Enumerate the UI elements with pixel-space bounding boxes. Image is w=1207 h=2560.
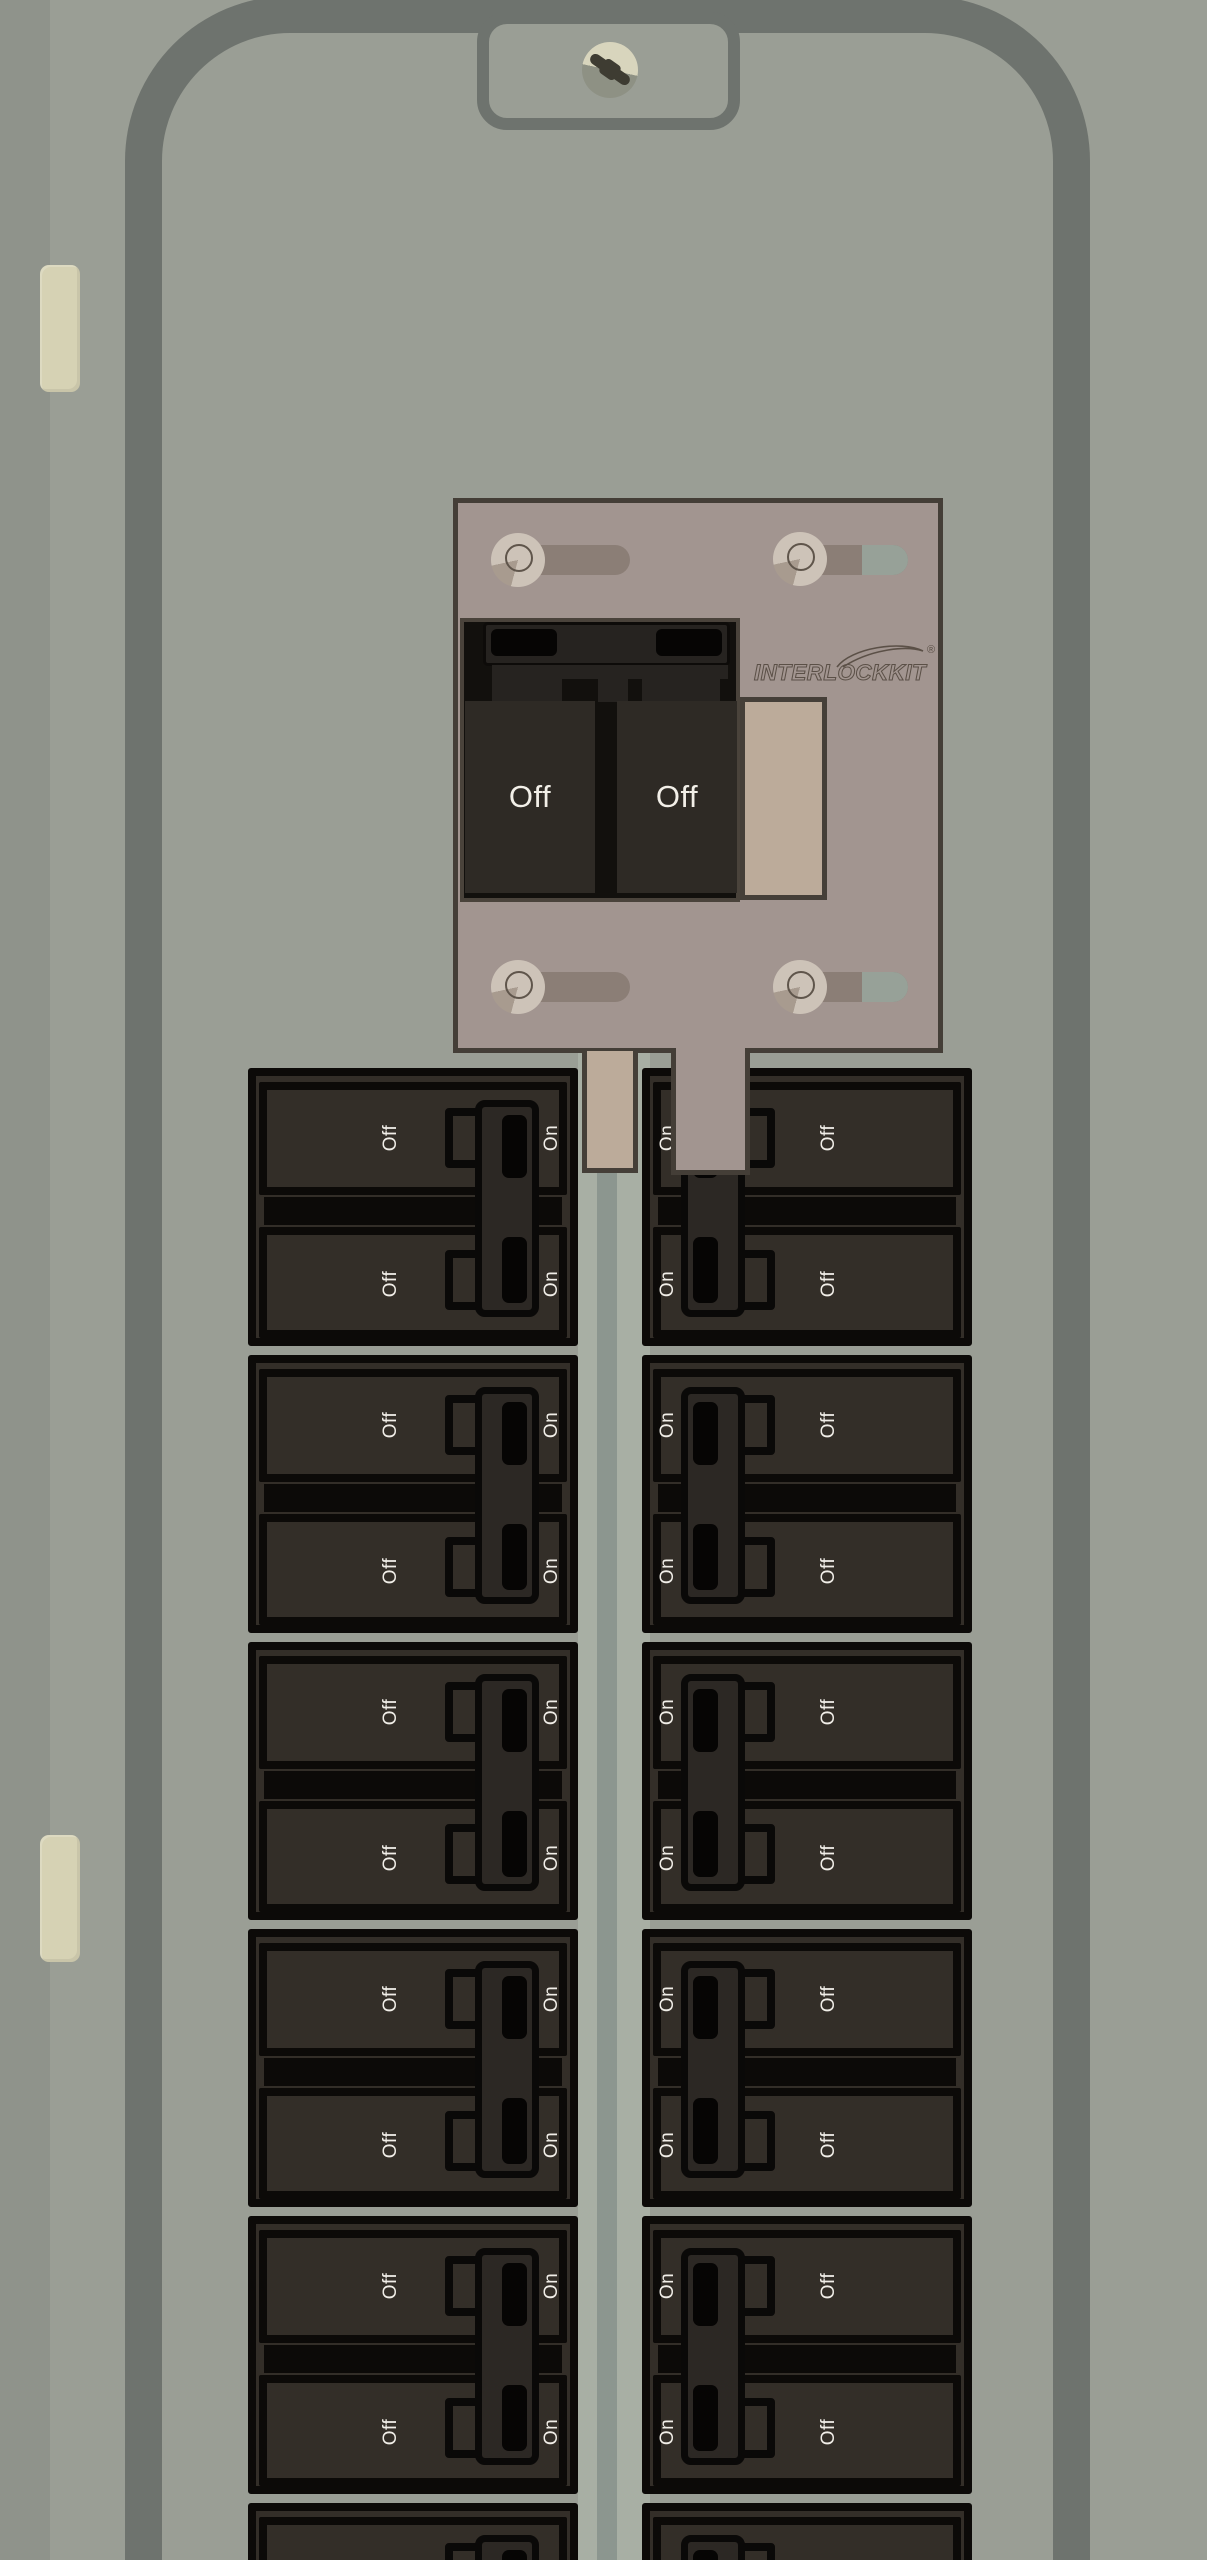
- breaker-label-off: Off: [380, 2273, 402, 2300]
- breaker-label-off: Off: [818, 1558, 840, 1585]
- column-gap: [578, 1048, 650, 2560]
- breaker-label-on: On: [657, 2273, 679, 2299]
- main-handle-slot: [491, 629, 557, 656]
- breaker-group: Off On Off On: [248, 1642, 578, 1920]
- breaker-column-left: Off On Off On Off On Off On Off On Off O…: [248, 1068, 578, 2560]
- breaker-label-on: On: [541, 2419, 563, 2445]
- breaker-label-off: Off: [818, 1699, 840, 1726]
- handle-slot-icon: [502, 1115, 527, 1178]
- screw-ring: [787, 971, 815, 999]
- breaker-label-on: On: [541, 2132, 563, 2158]
- breaker-group: Off On Off On: [642, 2216, 972, 2494]
- registered-mark: ®: [927, 644, 935, 656]
- breaker-group: Off On Off On: [248, 2503, 578, 2560]
- main-breaker-right-pole[interactable]: Off: [617, 701, 737, 893]
- main-breaker-left-label: Off: [509, 779, 551, 815]
- interlock-plate-seam: [676, 1045, 745, 1054]
- screw-ring: [787, 543, 815, 571]
- breaker-label-on: On: [657, 1271, 679, 1297]
- handle-slot-icon: [693, 2385, 718, 2451]
- hinge-icon: [40, 265, 80, 392]
- breaker-label-on: On: [541, 1986, 563, 2012]
- breaker-group: Off On Off On: [248, 1929, 578, 2207]
- handle-slot-icon: [502, 2263, 527, 2326]
- breaker-label-off: Off: [818, 2132, 840, 2159]
- breaker-label-on: On: [541, 1845, 563, 1871]
- breaker-label-off: Off: [818, 2419, 840, 2446]
- breaker-label-on: On: [541, 1271, 563, 1297]
- breaker-label-off: Off: [380, 1412, 402, 1439]
- handle-slot-icon: [693, 2263, 718, 2326]
- interlockkit-logo: INTERLOCKKIT ®: [753, 636, 943, 688]
- screw-icon: [773, 960, 827, 1014]
- breaker-label-on: On: [657, 1845, 679, 1871]
- handle-slot-icon: [693, 1524, 718, 1590]
- breaker-group: Off On Off On: [642, 1642, 972, 1920]
- screw-ring: [505, 544, 533, 572]
- main-handle-slot: [656, 629, 722, 656]
- screw-track-open-slot: [862, 545, 908, 575]
- interlock-plate-center-tab: [671, 1051, 750, 1175]
- breaker-label-off: Off: [818, 1271, 840, 1298]
- column-gap-divider: [597, 1048, 617, 2560]
- breaker-label-on: On: [541, 1412, 563, 1438]
- screw-track-open-slot: [862, 972, 908, 1002]
- screw-icon: [582, 42, 638, 98]
- breaker-label-off: Off: [818, 1845, 840, 1872]
- handle-slot-icon: [502, 1976, 527, 2039]
- screw-icon: [491, 533, 545, 587]
- handle-slot-icon: [502, 1402, 527, 1465]
- breaker-label-on: On: [657, 1558, 679, 1584]
- breaker-column-right: Off On Off On Off On Off On Off On Off O…: [642, 1068, 972, 2560]
- breaker-label-on: On: [657, 2419, 679, 2445]
- handle-slot-icon: [502, 1237, 527, 1303]
- interlock-slider-plate[interactable]: [740, 697, 827, 900]
- breaker-label-off: Off: [818, 1986, 840, 2013]
- handle-slot-icon: [502, 1689, 527, 1752]
- breaker-panel: Off On Off On Off On Off On Off On Off O…: [0, 0, 1207, 2560]
- breaker-label-on: On: [657, 1412, 679, 1438]
- breaker-label-off: Off: [380, 1986, 402, 2013]
- breaker-label-off: Off: [380, 2132, 402, 2159]
- main-breaker-right-label: Off: [656, 779, 698, 815]
- breaker-label-off: Off: [380, 1558, 402, 1585]
- handle-slot-icon: [502, 1811, 527, 1877]
- handle-slot-icon: [502, 2385, 527, 2451]
- breaker-label-off: Off: [380, 1699, 402, 1726]
- breaker-label-on: On: [657, 2132, 679, 2158]
- breaker-label-on: On: [657, 1986, 679, 2012]
- breaker-label-off: Off: [818, 1125, 840, 1152]
- breaker-label-on: On: [541, 1558, 563, 1584]
- breaker-group: Off On Off On: [642, 2503, 972, 2560]
- breaker-group: Off On Off On: [642, 1355, 972, 1633]
- breaker-group: Off On Off On: [642, 1929, 972, 2207]
- handle-slot-icon: [502, 2098, 527, 2164]
- handle-slot-icon: [502, 2550, 527, 2560]
- handle-slot-icon: [693, 1237, 718, 1303]
- handle-slot-icon: [693, 1402, 718, 1465]
- main-handle-post: [598, 666, 628, 702]
- handle-slot-icon: [693, 1976, 718, 2039]
- breaker-label-on: On: [541, 1125, 563, 1151]
- handle-slot-icon: [502, 1524, 527, 1590]
- hinge-icon: [40, 1835, 80, 1962]
- screw-icon: [773, 532, 827, 586]
- breaker-label-off: Off: [380, 1271, 402, 1298]
- breaker-label-off: Off: [818, 2273, 840, 2300]
- breaker-label-on: On: [541, 1699, 563, 1725]
- handle-slot-icon: [693, 1811, 718, 1877]
- screw-icon: [491, 960, 545, 1014]
- breaker-label-off: Off: [380, 2419, 402, 2446]
- breaker-label-off: Off: [380, 1125, 402, 1152]
- breaker-group: Off On Off On: [248, 2216, 578, 2494]
- breaker-group: Off On Off On: [248, 1355, 578, 1633]
- breaker-label-off: Off: [380, 1845, 402, 1872]
- breaker-group: Off On Off On: [248, 1068, 578, 1346]
- screw-ring: [505, 971, 533, 999]
- main-breaker-left-pole[interactable]: Off: [465, 701, 595, 893]
- breaker-label-on: On: [657, 1699, 679, 1725]
- breaker-label-on: On: [541, 2273, 563, 2299]
- interlock-slider-tab[interactable]: [582, 1051, 638, 1173]
- breaker-label-off: Off: [818, 1412, 840, 1439]
- handle-slot-icon: [693, 2550, 718, 2560]
- main-handle-stub: [642, 679, 720, 702]
- main-handle-stub: [492, 679, 562, 702]
- handle-slot-icon: [693, 2098, 718, 2164]
- logo-text: INTERLOCKKIT: [754, 660, 927, 685]
- handle-slot-icon: [693, 1689, 718, 1752]
